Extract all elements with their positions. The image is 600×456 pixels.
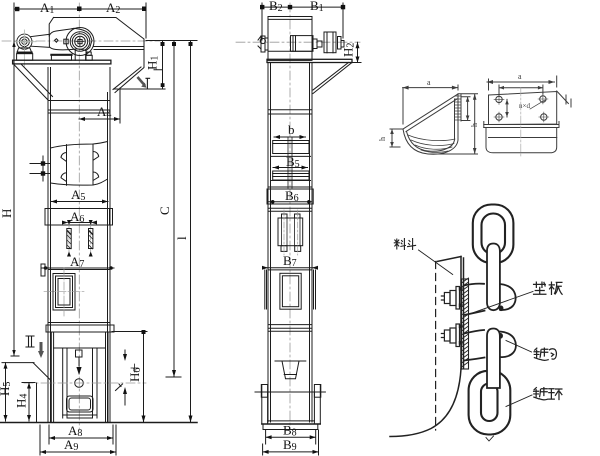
svg-text:h: h: [470, 123, 479, 127]
svg-text:h: h: [378, 137, 387, 141]
svg-text:l: l: [174, 236, 189, 240]
svg-text:B2: B2: [269, 0, 283, 14]
svg-text:C: C: [157, 206, 172, 215]
svg-text:a: a: [427, 78, 431, 87]
svg-text:a: a: [518, 72, 522, 81]
svg-text:B1: B1: [310, 0, 324, 14]
svg-text:b: b: [288, 122, 295, 137]
svg-text:H5: H5: [0, 382, 13, 396]
svg-text:H: H: [0, 209, 14, 218]
